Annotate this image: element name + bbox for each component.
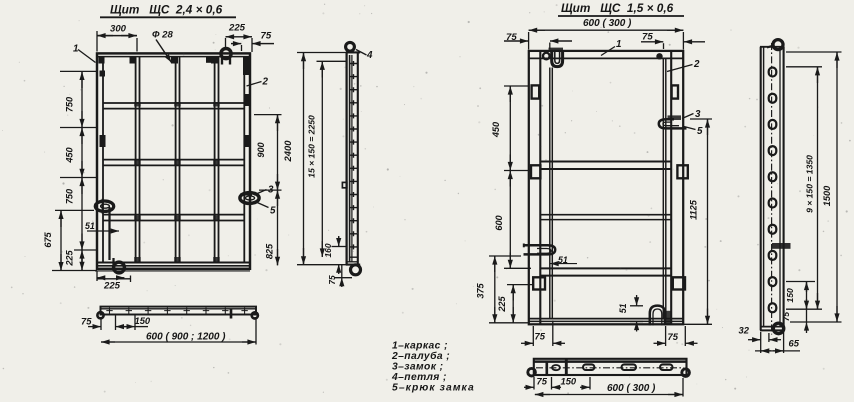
svg-text:5: 5 xyxy=(697,126,703,137)
svg-text:2: 2 xyxy=(693,59,700,70)
svg-text:600 ( 300 ): 600 ( 300 ) xyxy=(583,18,632,29)
svg-text:Щит ЩС 1,5 × 0,6: Щит ЩС 1,5 × 0,6 xyxy=(561,1,674,15)
svg-text:75: 75 xyxy=(535,331,546,342)
svg-text:75: 75 xyxy=(327,275,337,285)
svg-text:750: 750 xyxy=(64,96,74,112)
svg-text:32: 32 xyxy=(739,325,750,336)
svg-text:150: 150 xyxy=(785,288,795,303)
svg-text:375: 375 xyxy=(476,282,486,298)
svg-text:450: 450 xyxy=(491,121,501,138)
svg-text:825: 825 xyxy=(264,243,274,259)
svg-text:3–замок ;: 3–замок ; xyxy=(392,362,443,373)
svg-text:5–крюк замка: 5–крюк замка xyxy=(392,383,475,394)
svg-text:1500: 1500 xyxy=(822,185,832,206)
svg-text:300: 300 xyxy=(110,24,127,35)
svg-text:75: 75 xyxy=(537,376,548,387)
svg-text:15 × 150 = 2250: 15 × 150 = 2250 xyxy=(307,115,317,178)
svg-text:675: 675 xyxy=(43,231,53,247)
svg-text:160: 160 xyxy=(323,243,333,257)
svg-text:75: 75 xyxy=(668,331,679,342)
svg-text:900: 900 xyxy=(256,141,266,157)
svg-text:75: 75 xyxy=(261,31,272,42)
svg-text:65: 65 xyxy=(789,338,800,349)
svg-text:75: 75 xyxy=(81,316,92,327)
svg-text:1125: 1125 xyxy=(689,199,699,220)
svg-text:75: 75 xyxy=(642,32,653,43)
svg-text:1–каркас ;: 1–каркас ; xyxy=(392,341,448,352)
svg-text:4: 4 xyxy=(366,50,373,61)
svg-text:Щит ЩС 2,4 × 0,6: Щит ЩС 2,4 × 0,6 xyxy=(110,3,223,17)
svg-text:450: 450 xyxy=(64,146,74,163)
svg-text:Ф 28: Ф 28 xyxy=(152,30,173,41)
svg-text:2–палуба ;: 2–палуба ; xyxy=(391,350,450,362)
svg-text:750: 750 xyxy=(64,188,74,204)
svg-text:51: 51 xyxy=(618,303,628,313)
svg-text:51: 51 xyxy=(85,221,95,231)
svg-text:225: 225 xyxy=(228,23,246,34)
svg-text:1: 1 xyxy=(73,44,78,55)
svg-text:150: 150 xyxy=(561,376,577,387)
svg-text:75: 75 xyxy=(781,312,791,322)
svg-text:600: 600 xyxy=(494,214,504,230)
svg-text:9 × 150 = 1350: 9 × 150 = 1350 xyxy=(805,155,815,213)
svg-text:225: 225 xyxy=(103,281,121,292)
svg-text:225: 225 xyxy=(64,249,74,266)
svg-text:2: 2 xyxy=(262,77,269,88)
svg-text:600 ( 300 ): 600 ( 300 ) xyxy=(607,383,656,394)
svg-text:1: 1 xyxy=(616,39,621,50)
svg-text:150: 150 xyxy=(135,315,151,326)
svg-text:225: 225 xyxy=(497,295,507,312)
svg-text:5: 5 xyxy=(270,206,276,217)
svg-text:4–петля ;: 4–петля ; xyxy=(391,372,447,383)
svg-text:2400: 2400 xyxy=(282,140,293,163)
svg-text:600 ( 900 ; 1200 ): 600 ( 900 ; 1200 ) xyxy=(146,332,226,343)
